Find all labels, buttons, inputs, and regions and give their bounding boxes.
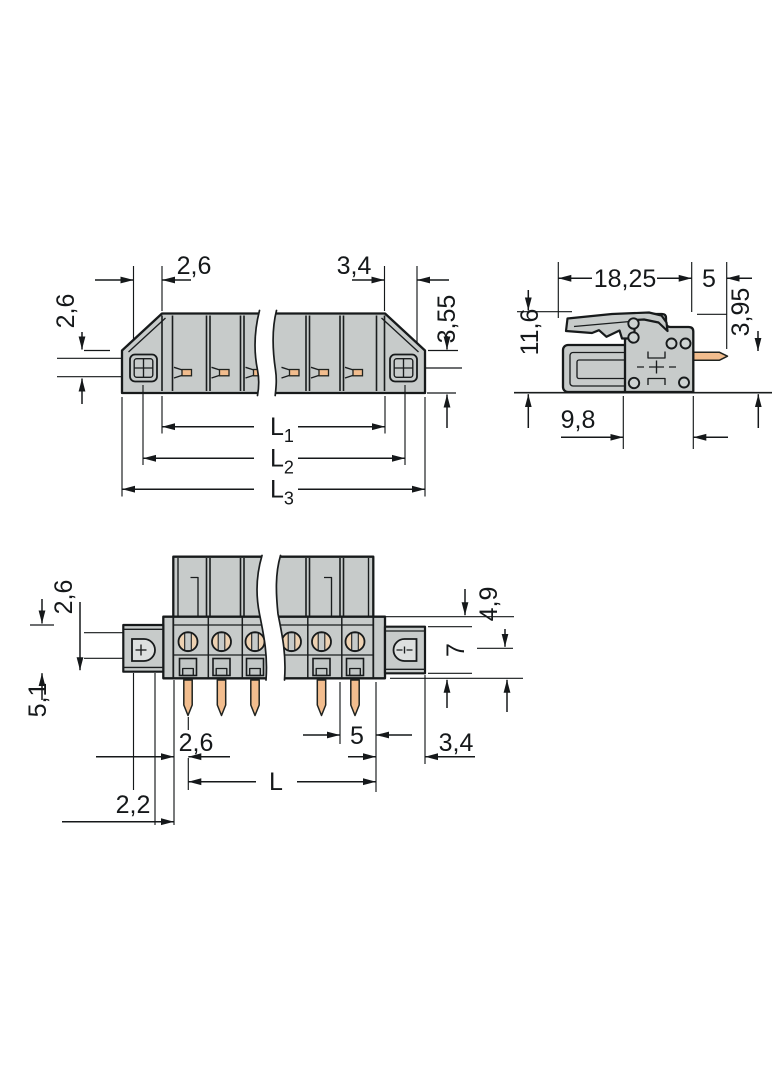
front-view-body (57, 309, 462, 397)
dim-label-bottom-edge-offset: 2,2 (116, 791, 151, 819)
bottom-solder-pins (184, 680, 359, 716)
dim-label-front-top-right: 3,4 (337, 252, 372, 280)
bottom-view: 2,6 5,1 4,9 7 5 (24, 554, 523, 825)
dim-label-side-depth: 9,8 (561, 406, 596, 434)
dim-label-bottom-flange-right: 7 (442, 643, 470, 657)
dim-label-front-top-left: 2,6 (177, 252, 212, 280)
dim-label-front-l3: L3 (270, 476, 294, 509)
technical-drawing: 2,6 3,4 2,6 3,55 L1 L2 L3 (0, 0, 784, 1066)
front-break (255, 309, 276, 397)
bottom-left-flange (123, 625, 163, 672)
dim-label-side-height: 11,6 (516, 309, 544, 356)
side-view: 18,25 5 11,6 3,95 9,8 (514, 262, 772, 449)
dim-label-bottom-upper-right: 4,9 (475, 587, 503, 622)
bottom-right-flange (385, 627, 425, 674)
dim-label-bottom-pin-offset: 2,6 (179, 729, 214, 757)
dim-label-bottom-lower-left: 5,1 (24, 683, 52, 718)
dim-label-bottom-length: L (269, 768, 283, 796)
dim-label-bottom-upper-left: 2,6 (50, 580, 78, 615)
dim-label-bottom-right-offset: 3,4 (439, 729, 474, 757)
dim-label-front-left: 2,6 (52, 294, 80, 329)
drawing-canvas: 2,6 3,4 2,6 3,55 L1 L2 L3 (0, 0, 784, 1066)
dim-label-front-l1: L1 (270, 413, 294, 446)
dim-label-front-right: 3,55 (433, 295, 461, 344)
dim-label-side-pin-length: 5 (702, 265, 716, 293)
front-view: 2,6 3,4 2,6 3,55 L1 L2 L3 (52, 252, 462, 509)
dim-label-front-l2: L2 (270, 445, 294, 478)
dim-label-side-pin-height: 3,95 (727, 288, 755, 337)
bottom-view-body (84, 554, 523, 716)
side-solder-pin (693, 352, 727, 360)
dim-label-side-width: 18,25 (594, 265, 657, 293)
dim-label-bottom-pitch: 5 (350, 722, 364, 750)
